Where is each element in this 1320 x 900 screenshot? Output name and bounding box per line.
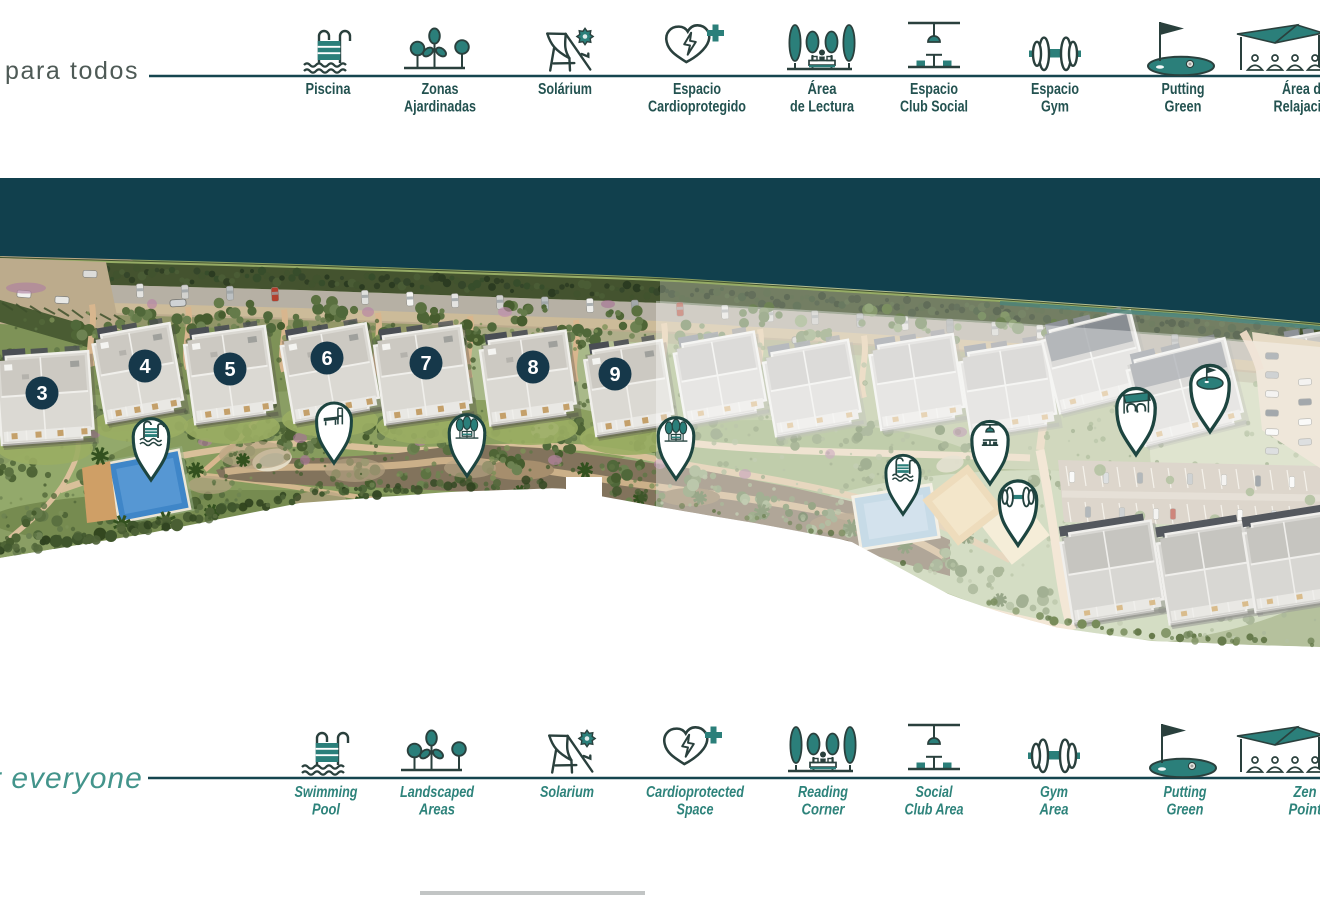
svg-text:Espacio: Espacio — [1031, 81, 1079, 98]
svg-text:Cardioprotegido: Cardioprotegido — [648, 99, 746, 116]
svg-text:Zonas: Zonas — [422, 81, 459, 98]
svg-text:Space: Space — [677, 802, 714, 819]
svg-text:9: 9 — [609, 364, 620, 386]
svg-text:de Lectura: de Lectura — [790, 99, 854, 116]
svg-text:Swimming: Swimming — [295, 784, 358, 801]
svg-text:Solárium: Solárium — [538, 81, 592, 98]
svg-text:Reading: Reading — [798, 784, 848, 801]
svg-text:Green: Green — [1165, 99, 1202, 116]
svg-text:Club Social: Club Social — [900, 99, 968, 116]
svg-text:Landscaped: Landscaped — [400, 784, 474, 801]
svg-text:Espacio: Espacio — [673, 81, 721, 98]
svg-text:Area: Area — [1039, 802, 1069, 819]
svg-text:Área de: Área de — [1282, 81, 1320, 98]
svg-text:for everyone: for everyone — [0, 762, 143, 795]
svg-text:para todos: para todos — [5, 57, 139, 85]
svg-text:Espacio: Espacio — [910, 81, 958, 98]
svg-text:Gym: Gym — [1040, 784, 1068, 801]
svg-text:Putting: Putting — [1164, 784, 1207, 801]
svg-text:Areas: Areas — [418, 802, 455, 819]
svg-text:8: 8 — [527, 357, 538, 379]
svg-text:Ajardinadas: Ajardinadas — [404, 99, 476, 116]
svg-text:Cardioprotected: Cardioprotected — [646, 784, 744, 801]
svg-text:Putting: Putting — [1162, 81, 1205, 98]
svg-text:Green: Green — [1167, 802, 1204, 819]
svg-text:5: 5 — [224, 359, 235, 381]
svg-text:Point: Point — [1289, 802, 1320, 819]
svg-text:7: 7 — [420, 353, 431, 375]
svg-text:Club Area: Club Area — [905, 802, 964, 819]
svg-text:Social: Social — [916, 784, 954, 801]
svg-text:6: 6 — [321, 348, 332, 370]
svg-text:Zen: Zen — [1293, 784, 1317, 801]
svg-text:Piscina: Piscina — [306, 81, 351, 98]
svg-text:Pool: Pool — [312, 802, 341, 819]
svg-text:Solarium: Solarium — [540, 784, 594, 801]
svg-text:4: 4 — [139, 356, 151, 378]
svg-text:3: 3 — [36, 383, 47, 405]
svg-text:Corner: Corner — [802, 802, 846, 819]
svg-text:Área: Área — [808, 81, 837, 98]
svg-text:Gym: Gym — [1041, 99, 1069, 116]
svg-text:Relajación: Relajación — [1274, 99, 1320, 116]
